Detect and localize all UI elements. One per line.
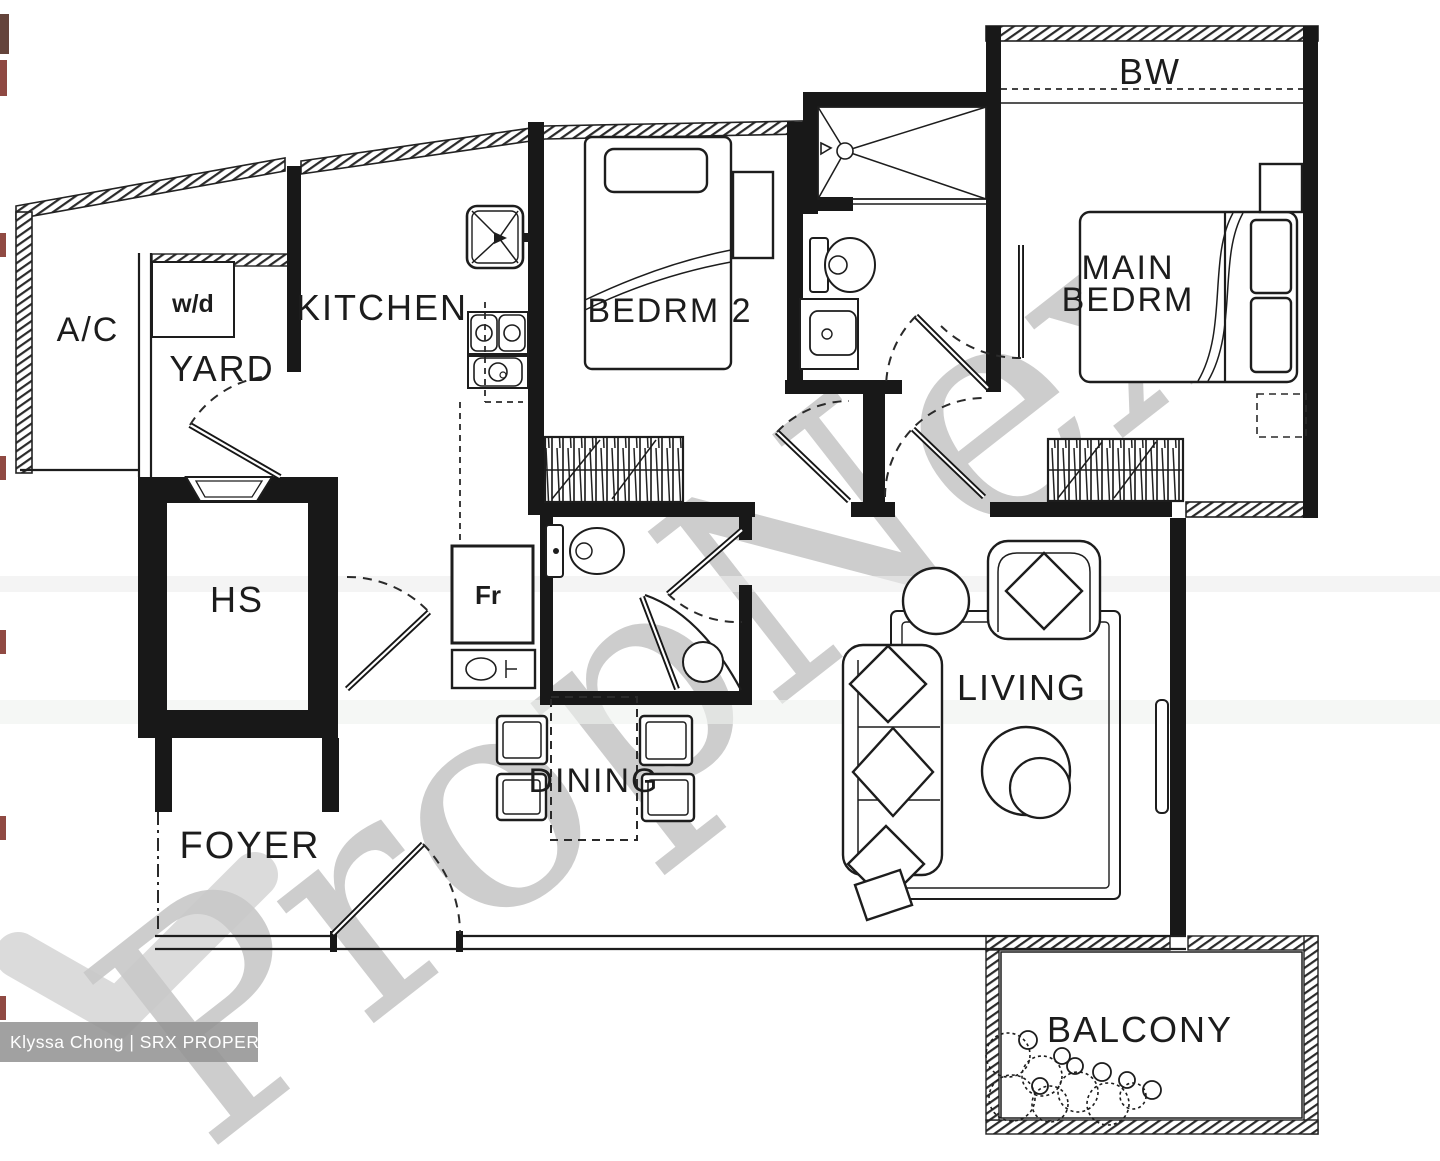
scan-edge-marks	[0, 14, 9, 1020]
pillow	[1251, 298, 1291, 372]
dining-chair	[640, 716, 692, 765]
credit-text: Klyssa Chong | SRX PROPERTY	[0, 1032, 283, 1053]
toilet	[810, 238, 875, 292]
toilet2	[546, 525, 624, 577]
nightstand	[1260, 164, 1302, 212]
balcony-door-panel	[1156, 700, 1168, 813]
label-living: LIVING	[957, 667, 1087, 708]
shower	[818, 107, 986, 199]
main-bedroom-wardrobe	[1048, 439, 1183, 501]
label-balcony: BALCONY	[1047, 1009, 1233, 1050]
label-bw: BW	[1119, 51, 1181, 92]
nightstand	[733, 172, 773, 258]
coffee-table	[982, 727, 1070, 818]
label-fridge: Fr	[475, 580, 501, 610]
pillow	[605, 149, 707, 192]
label-kitchen: KITCHEN	[296, 287, 468, 328]
yard-door	[186, 377, 280, 501]
label-foyer: FOYER	[180, 825, 321, 867]
credit-bar: Klyssa Chong | SRX PROPERTY	[0, 1022, 258, 1062]
label-bedroom2: BEDRM 2	[587, 292, 752, 330]
label-wd: w/d	[171, 290, 214, 318]
label-ac: A/C	[57, 311, 120, 349]
vanity-sink	[800, 299, 858, 369]
label-main-bedroom-2: BEDRM	[1062, 281, 1195, 319]
floor-plan-page: PropNex	[0, 0, 1440, 1161]
kitchen-stove	[468, 312, 528, 388]
label-yard: YARD	[169, 348, 274, 389]
bedroom2-furniture	[585, 137, 773, 369]
label-hs: HS	[210, 579, 264, 620]
dining-chair	[497, 716, 547, 764]
label-dining: DINING	[529, 762, 660, 800]
armchair	[988, 541, 1100, 639]
bedroom2-wardrobe	[545, 437, 683, 502]
floor-plan-drawing: PropNex	[0, 0, 1440, 1161]
kitchen-sink	[467, 206, 530, 268]
side-table	[903, 568, 969, 634]
sofa	[843, 645, 942, 920]
basin-counter	[452, 650, 535, 688]
pillow	[1251, 220, 1291, 293]
